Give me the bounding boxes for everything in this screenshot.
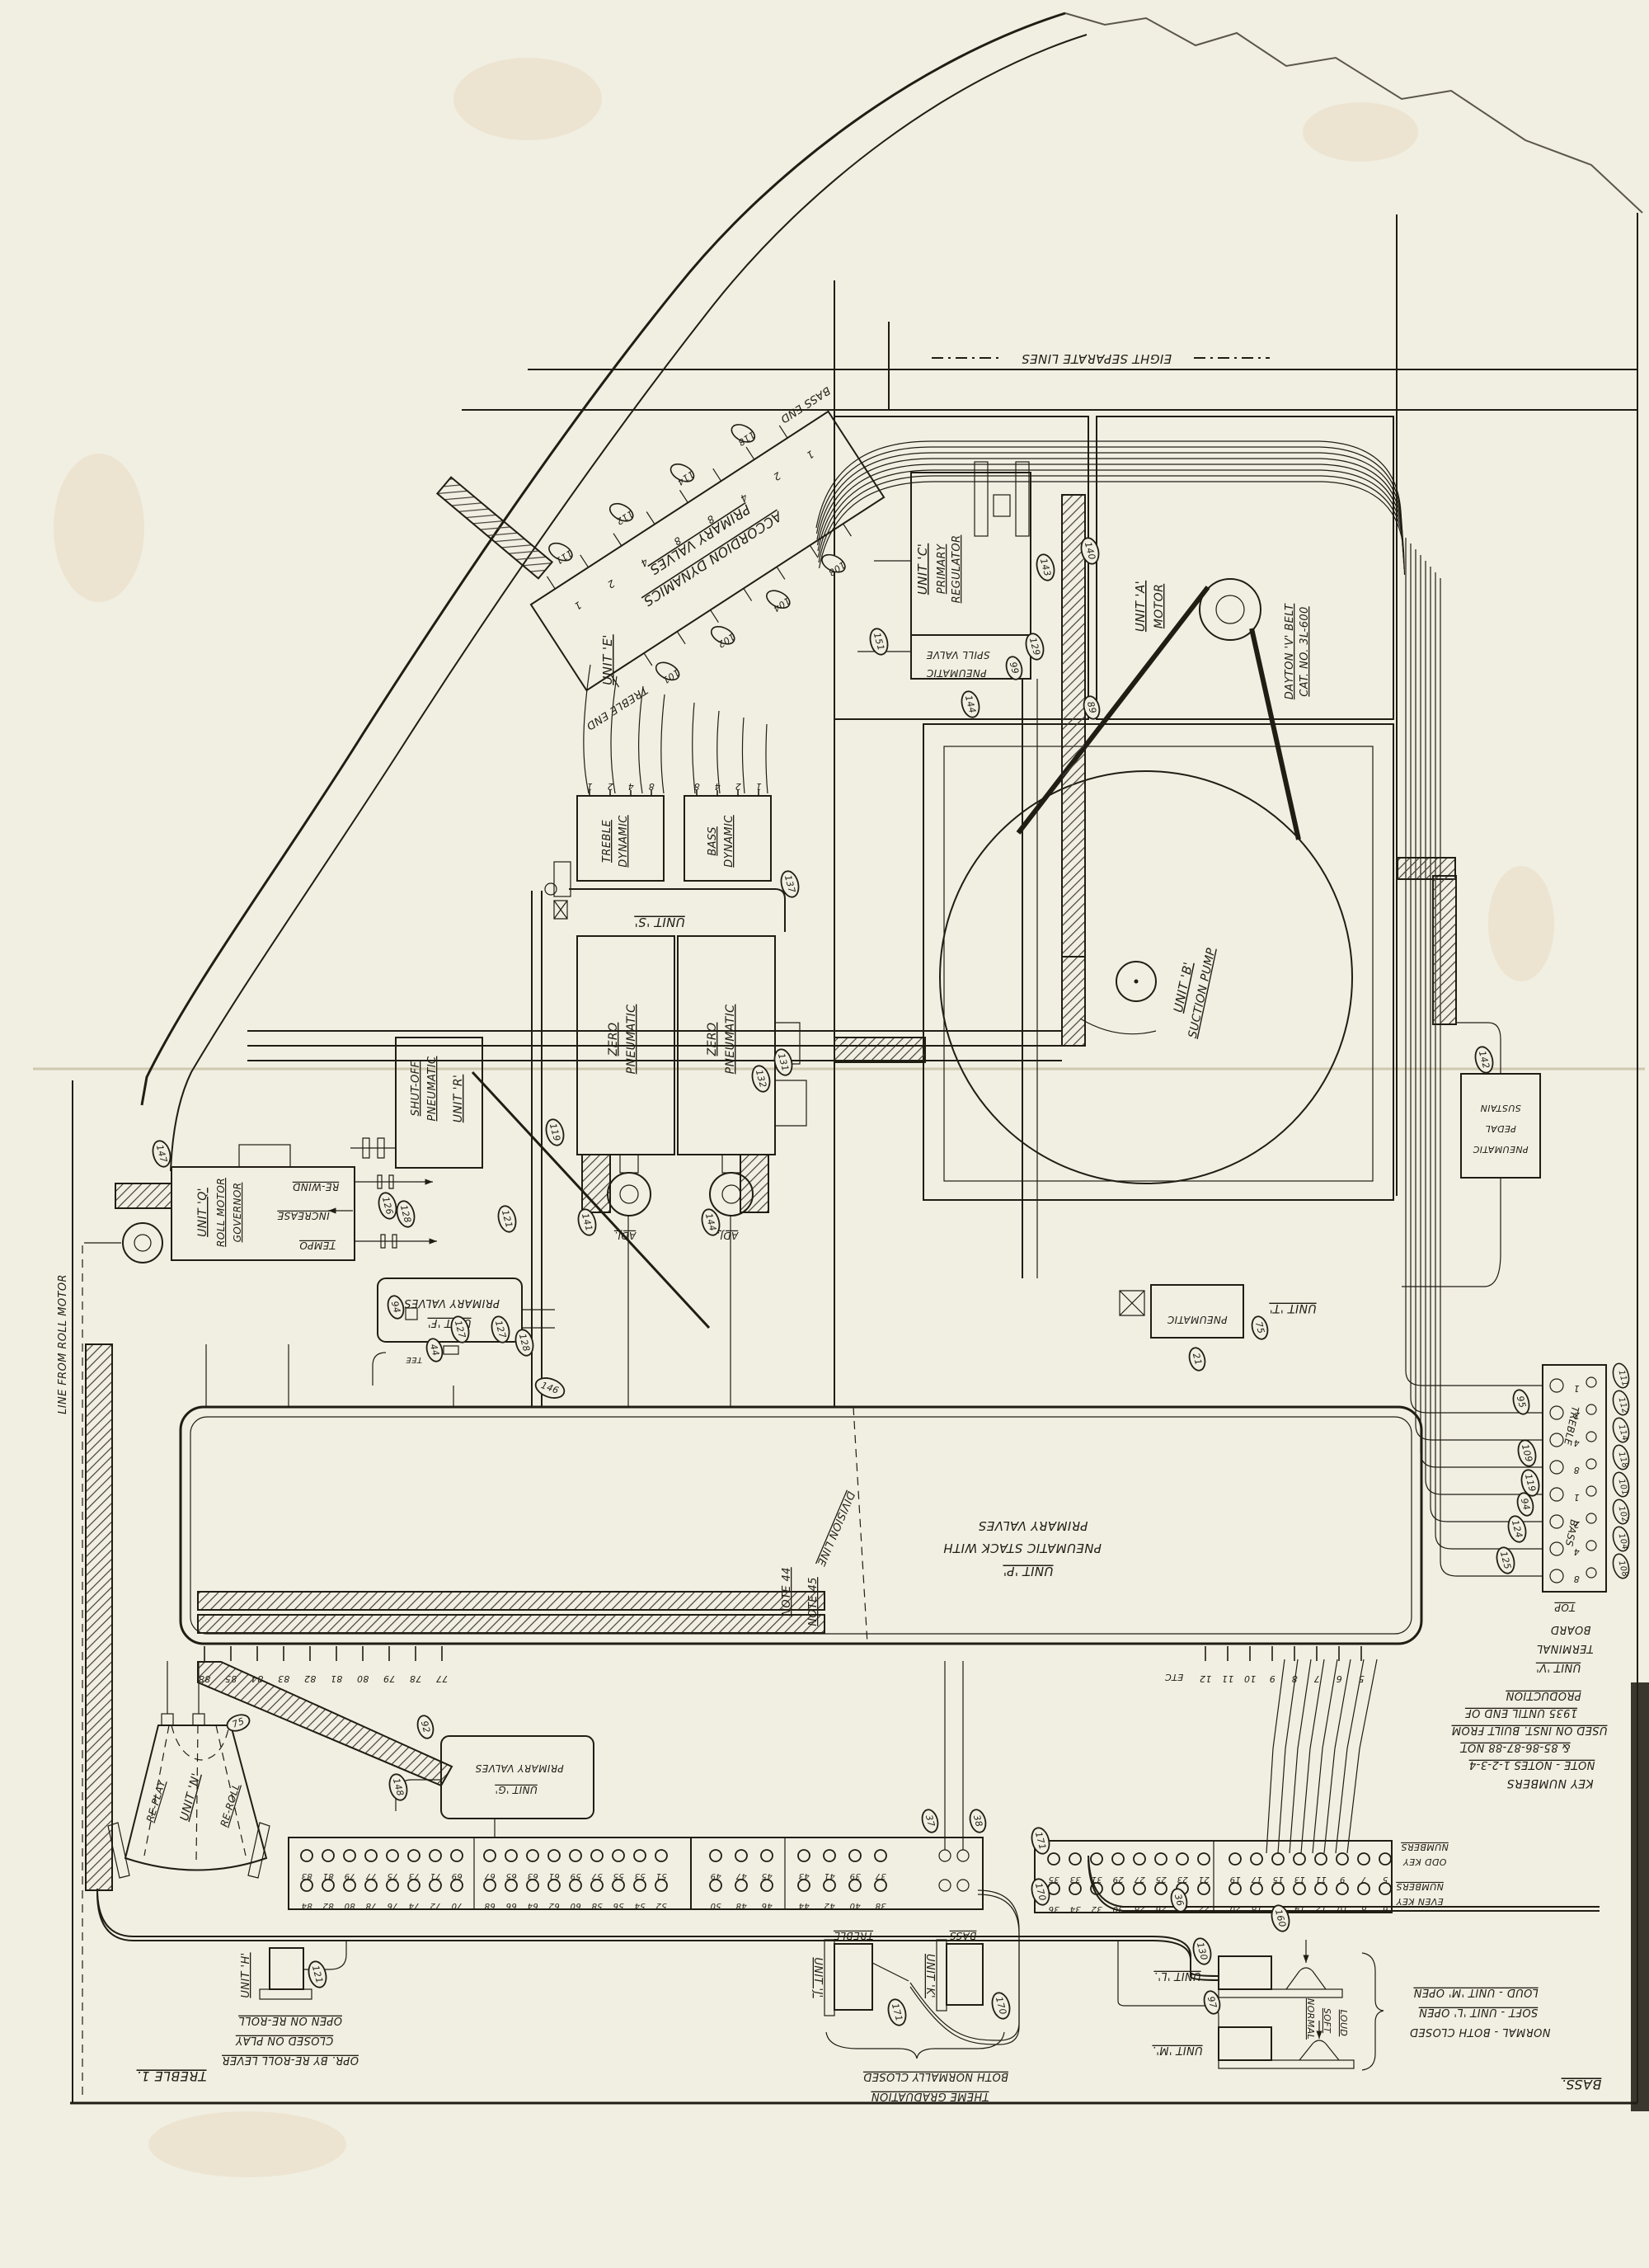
even-key-label: EVEN KEY xyxy=(1396,1896,1444,1907)
sustain-line1: SUSTAIN xyxy=(1480,1103,1521,1113)
row-value: 11 xyxy=(1222,1673,1234,1684)
row-value: 2 xyxy=(771,469,782,482)
row-value: 83 xyxy=(278,1673,290,1684)
row-value: 40 xyxy=(849,1901,861,1910)
unit-n-label: UNIT 'N' xyxy=(178,1772,204,1822)
unit-a-label: UNIT 'A' xyxy=(1133,581,1148,632)
note-44: NOTE 44 xyxy=(781,1567,793,1616)
v-top-label: TOP xyxy=(1554,1602,1576,1613)
reroll-label: RE-ROLL xyxy=(218,1782,242,1828)
row-value: 62 xyxy=(548,1901,560,1910)
adj-left: ADJ. xyxy=(614,1230,637,1241)
row-value: 4 xyxy=(714,781,720,792)
unit-g-valves: PRIMARY VALVES UNIT 'G' xyxy=(396,1736,594,1837)
unit-s-dynamics: TREBLE DYNAMIC BASS DYNAMIC 1248 8421 UN… xyxy=(545,781,785,932)
jk-brace xyxy=(826,2032,1004,2059)
row-value: 80 xyxy=(344,1901,355,1910)
unit-n-note: OPEN ON RE-ROLL CLOSED ON PLAY OPR. BY R… xyxy=(222,2014,359,2066)
unit-r-label: UNIT 'R' xyxy=(452,1075,465,1122)
accordion-bass-end: BASS END xyxy=(778,383,832,425)
row-value: 4 xyxy=(1573,1546,1579,1557)
normal-label: NORMAL xyxy=(1305,1998,1316,2040)
tee-label: TEE xyxy=(406,1355,422,1364)
unit-k-tag: BASS xyxy=(950,1930,977,1941)
row-value: 30 xyxy=(1112,1904,1124,1913)
row-value: 70 xyxy=(451,1901,463,1910)
row-value: 76 xyxy=(387,1901,398,1910)
row-value: 77 xyxy=(436,1673,449,1684)
row-value: 12 xyxy=(1200,1673,1212,1684)
row-value: 7 xyxy=(1313,1673,1319,1684)
scan-edge-shadow xyxy=(1631,1682,1649,2111)
row-value: 8 xyxy=(693,781,699,792)
etc-label: ETC xyxy=(1165,1672,1184,1682)
unit-t-pneumatic: PNEUMATIC UNIT 'T' xyxy=(1120,1285,1317,1338)
lm-brace xyxy=(1362,1953,1384,2070)
row-value: 26 xyxy=(1155,1904,1167,1913)
unit-g-line2: UNIT 'G' xyxy=(495,1784,538,1795)
tempo-label: TEMPO xyxy=(299,1240,336,1251)
blueprint-sheet: EIGHT SEPARATE LINES ACCORDION DYNAMICS … xyxy=(0,0,1649,2268)
row-value: 9 xyxy=(1269,1673,1275,1684)
zero-left-2: PNEUMATIC xyxy=(625,1005,638,1075)
row-value: 8 xyxy=(1361,1904,1367,1913)
row-value: 2 xyxy=(605,577,617,591)
belt-label-1: DAYTON 'V' BELT xyxy=(1284,603,1296,699)
jk-note-line: THEME GRADUATION xyxy=(871,2090,989,2102)
spill-pneumatic-label: PNEUMATIC xyxy=(926,667,986,679)
replay-label: RE-PLAY xyxy=(144,1777,168,1823)
unit-q-line1: ROLL MOTOR xyxy=(215,1178,227,1247)
row-value: 78 xyxy=(410,1673,422,1684)
treble-dynamic-1: TREBLE xyxy=(601,820,613,863)
row-value: 32 xyxy=(1091,1904,1102,1913)
left-board-odd-row: 8381797775737169676563615957555351 xyxy=(301,1850,667,1880)
odd-key-label: ODD KEY xyxy=(1402,1856,1447,1867)
unit-j-k: TREBLE BASS UNIT 'J' UNIT 'K' BOTH NORMA… xyxy=(811,1890,1019,2102)
unit-h-label: UNIT 'H' xyxy=(240,1952,252,1997)
row-value: 8 xyxy=(671,534,683,548)
row-value: 74 xyxy=(408,1901,420,1910)
shutoff-pneumatic-label: PNEUMATIC xyxy=(426,1056,439,1121)
mid-board-up-tubes xyxy=(945,1661,963,1850)
unit-c-line2: REGULATOR xyxy=(951,535,963,604)
treble-corner-label: TREBLE 1. xyxy=(137,2068,207,2084)
mid-board-even-row: 50484644424038 xyxy=(710,1880,886,1910)
unit-s-label: UNIT 'S' xyxy=(634,915,685,929)
suction-pump-label: SUCTION PUMP xyxy=(1186,947,1219,1040)
unit-p-stack: PRIMARY VALVES PNEUMATIC STACK WITH UNIT… xyxy=(181,1407,1421,1684)
v-name-2: TERMINAL xyxy=(1536,1642,1593,1654)
row-value: 79 xyxy=(383,1673,396,1684)
row-value: 44 xyxy=(798,1901,810,1910)
note-line: USED ON INST. BUILT FROM xyxy=(1452,1724,1608,1736)
unit-p-line1: PRIMARY VALVES xyxy=(978,1518,1088,1533)
lm-note-line: SOFT - UNIT 'L' OPEN xyxy=(1419,2006,1539,2018)
note-line: & 85-86-87-88 NOT xyxy=(1460,1741,1571,1753)
row-value: 4 xyxy=(738,492,749,505)
lm-note-line: NORMAL - BOTH CLOSED xyxy=(1410,2026,1551,2038)
row-value: 81 xyxy=(331,1673,343,1684)
v-board-right-terminals xyxy=(1586,1377,1596,1578)
division-line-label: DIVISION LINE xyxy=(814,1489,857,1568)
row-value: 1 xyxy=(586,781,592,792)
zero-right-1: ZERO xyxy=(706,1023,719,1057)
row-value: 18 xyxy=(1251,1904,1262,1913)
spill-valve-label: SPILL VALVE xyxy=(926,649,989,661)
row-value: 1 xyxy=(755,781,761,792)
zero-right-2: PNEUMATIC xyxy=(724,1005,737,1075)
right-board-odd-row: 35333129272523211917151311975 xyxy=(1048,1853,1391,1884)
bass-corner-label: BASS. xyxy=(1562,2077,1602,2092)
belt-label-2: CAT. NO. 3L-600 xyxy=(1299,606,1311,696)
row-value: 10 xyxy=(1244,1673,1257,1684)
fan-tubes xyxy=(1266,1659,1377,1853)
row-value: 50 xyxy=(710,1901,721,1910)
row-value: 58 xyxy=(591,1901,603,1910)
v-name-3: UNIT 'V' xyxy=(1536,1661,1581,1673)
zero-left-1: ZERO xyxy=(607,1023,620,1057)
rewind-label: RE-WIND xyxy=(293,1181,339,1193)
increase-label: INCREASE xyxy=(277,1210,329,1221)
row-value: 28 xyxy=(1134,1904,1145,1913)
unit-m-label: UNIT 'M'. xyxy=(1152,2044,1202,2056)
row-value: 46 xyxy=(761,1901,773,1910)
mid-board-odd-row: 49474543413937 xyxy=(710,1850,886,1880)
key-numbers-note: PRODUCTION 1935 UNTIL END OF USED ON INS… xyxy=(1396,1689,1608,1907)
note-line: PRODUCTION xyxy=(1506,1689,1581,1701)
shutoff-label: SHUT-OFF xyxy=(410,1061,422,1117)
unit-g-line1: PRIMARY VALVES xyxy=(475,1762,564,1774)
unit-f-line1: PRIMARY VALVES xyxy=(404,1296,500,1309)
row-value: 84 xyxy=(301,1901,312,1910)
unit-p-name: UNIT 'P' xyxy=(1003,1564,1053,1579)
row-value: 68 xyxy=(484,1901,496,1910)
note-45: NOTE 45 xyxy=(807,1577,820,1626)
note-line: NOTE - NOTES 1-2-3-4 xyxy=(1469,1758,1595,1771)
row-value: 8 xyxy=(1573,1574,1579,1584)
row-value: 38 xyxy=(875,1901,886,1910)
schematic-canvas: EIGHT SEPARATE LINES ACCORDION DYNAMICS … xyxy=(0,0,1649,2268)
unit-e-label: UNIT 'E' xyxy=(600,634,615,685)
row-value: 8 xyxy=(1573,1465,1579,1475)
tube-bundle-right xyxy=(1406,538,1543,1576)
bottom-terminal-boards: 8381797775737169676563615957555351 84828… xyxy=(289,1659,1392,1913)
row-value: 4 xyxy=(627,781,633,792)
v-right-ovals: 111112114118101102104108 xyxy=(1610,1362,1631,1580)
unit-e-accordion: ACCORDION DYNAMICS PRIMARY VALVES TREBLE… xyxy=(491,369,918,793)
row-value: 1 xyxy=(572,599,584,612)
row-value: 8 xyxy=(648,781,654,792)
jk-note-line: BOTH NORMALLY CLOSED xyxy=(863,2070,1008,2082)
row-value: 34 xyxy=(1069,1904,1081,1913)
even-key-label: NUMBERS xyxy=(1396,1881,1444,1892)
tube-callouts: 140 143 151 129 99 144 89 137 131 132 14… xyxy=(150,536,1542,2027)
note-line: CLOSED ON PLAY xyxy=(235,2034,333,2046)
row-value: 56 xyxy=(613,1901,624,1910)
row-value: 1 xyxy=(804,448,815,461)
unit-a-motor-label: MOTOR xyxy=(1153,584,1166,628)
row-value: 82 xyxy=(322,1901,334,1910)
bass-dynamic-1: BASS xyxy=(707,826,719,855)
sustain-pedal-pneumatic: SUSTAIN PEDAL PNEUMATIC xyxy=(1402,1023,1540,1287)
row-value: 48 xyxy=(735,1901,747,1910)
v-board-left-terminals xyxy=(1550,1379,1563,1583)
unit-j-label: UNIT 'J' xyxy=(811,1957,824,1997)
unit-q-line2: GOVERNOR xyxy=(232,1183,243,1243)
row-value: 6 xyxy=(1336,1673,1341,1684)
unit-h-pneumatic: UNIT 'H' xyxy=(240,1940,346,1999)
row-value: 10 xyxy=(1337,1904,1348,1913)
bass-dynamic-2: DYNAMIC xyxy=(723,815,735,868)
unit-v-terminal-board: 1248 1248 TREBLE BASS 111112114118101102… xyxy=(1536,1362,1632,1673)
row-value: 54 xyxy=(634,1901,646,1910)
v-bass-label: BASS xyxy=(1563,1518,1581,1547)
row-value: 2 xyxy=(607,781,613,792)
row-value: 1 xyxy=(1573,1383,1579,1394)
note-line: KEY NUMBERS xyxy=(1506,1776,1593,1790)
row-value: 8 xyxy=(705,513,716,526)
row-value: 72 xyxy=(430,1901,441,1910)
row-value: 78 xyxy=(365,1901,377,1910)
unit-r-shutoff: SHUT-OFF PNEUMATIC UNIT 'R' xyxy=(350,891,709,1407)
row-value: 80 xyxy=(357,1673,369,1684)
row-value: 64 xyxy=(527,1901,538,1910)
row-value: 66 xyxy=(505,1901,517,1910)
tube-bundle-top xyxy=(819,476,1404,569)
bass-dynamic-ports: 8421 xyxy=(693,781,761,797)
unit-t-pneumatic-label: PNEUMATIC xyxy=(1167,1314,1227,1325)
lm-note-line: LOUD - UNIT 'M' OPEN xyxy=(1413,1986,1538,1998)
sustain-line3: PNEUMATIC xyxy=(1473,1144,1528,1155)
note-line: OPEN ON RE-ROLL xyxy=(238,2014,342,2026)
mid-board-tube-terminals xyxy=(939,1850,969,1891)
accordion-lower-ovals: 101102104108 xyxy=(649,544,852,690)
soft-label: SOFT xyxy=(1322,2008,1332,2034)
zero-pneumatics: ZERO PNEUMATIC ZERO PNEUMATIC ADJ. ADJ. xyxy=(577,936,806,1241)
unit-t-label: UNIT 'T' xyxy=(1269,1301,1316,1315)
unit-l-label: UNIT 'L'. xyxy=(1153,1969,1200,1982)
unit-j-tag: TREBLE xyxy=(834,1930,873,1941)
treble-dynamic-ports: 1248 xyxy=(586,781,654,797)
unit-c-label: UNIT 'C' xyxy=(915,543,930,595)
loud-label: LOUD xyxy=(1338,2010,1349,2037)
unit-q-label: UNIT 'Q' xyxy=(196,1188,209,1237)
note-line: 1935 UNTIL END OF xyxy=(1465,1706,1577,1719)
row-value: 12 xyxy=(1315,1904,1327,1913)
line-from-roll-motor-label: LINE FROM ROLL MOTOR xyxy=(57,1274,69,1414)
row-value: 1 xyxy=(1573,1492,1579,1503)
unit-c-line1: PRIMARY xyxy=(936,543,948,594)
treble-dynamic-2: DYNAMIC xyxy=(618,815,630,868)
unit-b-suction-pump: UNIT 'B' SUCTION PUMP xyxy=(940,771,1352,1183)
row-value: 52 xyxy=(655,1901,667,1910)
row-value: 42 xyxy=(824,1901,835,1910)
row-value: 36 xyxy=(1048,1904,1059,1913)
unit-k-label: UNIT 'K' xyxy=(923,1954,936,1998)
sustain-line2: PEDAL xyxy=(1485,1123,1516,1134)
row-value: 60 xyxy=(570,1901,581,1910)
unit-p-line2: PNEUMATIC STACK WITH xyxy=(943,1541,1102,1555)
adj-right: ADJ. xyxy=(716,1230,739,1241)
row-value: 82 xyxy=(304,1673,317,1684)
note-line: OPR. BY RE-ROLL LEVER xyxy=(222,2054,359,2066)
row-value: 20 xyxy=(1229,1904,1241,1913)
v-name-1: BOARD xyxy=(1550,1623,1590,1635)
row-value: 22 xyxy=(1198,1904,1210,1913)
row-value: 6 xyxy=(1383,1904,1388,1913)
row-value: 2 xyxy=(735,781,740,792)
odd-key-label: NUMBERS xyxy=(1401,1842,1449,1852)
row-value: 14 xyxy=(1294,1904,1305,1913)
left-board-even-row: 8482807876747270686664626058565452 xyxy=(301,1880,667,1910)
row-value: 4 xyxy=(638,556,650,569)
eight-lines-label: EIGHT SEPARATE LINES xyxy=(1022,351,1172,366)
